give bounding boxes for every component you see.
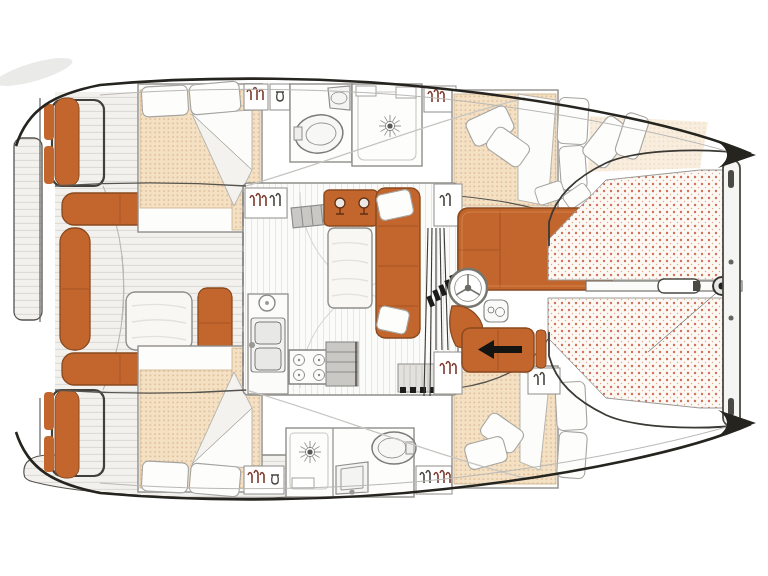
stove [289,350,329,384]
capsule-end [693,281,700,291]
transom-seat-bottom [55,390,79,478]
companionway-arrow-block [462,328,546,372]
transom-cushion [44,436,54,472]
transom-cushion [44,392,54,430]
transom-cushion [44,104,54,140]
pillow [189,463,241,497]
beam-slot [728,398,734,416]
saloon-table-group [328,228,372,308]
saloon [243,183,458,395]
background-smudge [0,52,75,91]
washbasin [328,86,350,110]
seat-wedge [536,330,546,368]
pillow [141,461,189,493]
transom-cushion [44,146,54,184]
forward-crossbeam [723,160,740,426]
beam-bolt [729,260,734,265]
cockpit-table-group [126,292,192,350]
companionway-steps-starboard [326,342,358,386]
beam-slot [728,170,734,188]
wheel-hub [465,285,471,291]
faucet [249,342,255,348]
deck-locker [434,352,462,394]
drain [265,301,269,305]
toilet [372,432,416,464]
shelf [292,478,314,488]
catamaran-floorplan [0,0,768,576]
shelf [356,86,376,96]
floorplan-stage [0,0,768,576]
pillow [189,81,241,115]
pillow [141,85,189,117]
sink-basin [255,322,281,344]
beam-bolt [729,316,734,321]
locker [270,84,290,110]
port-swim-platform [14,138,42,320]
sink-basin [255,348,281,370]
washbasin [336,462,368,495]
transom-seat-top [55,98,79,186]
